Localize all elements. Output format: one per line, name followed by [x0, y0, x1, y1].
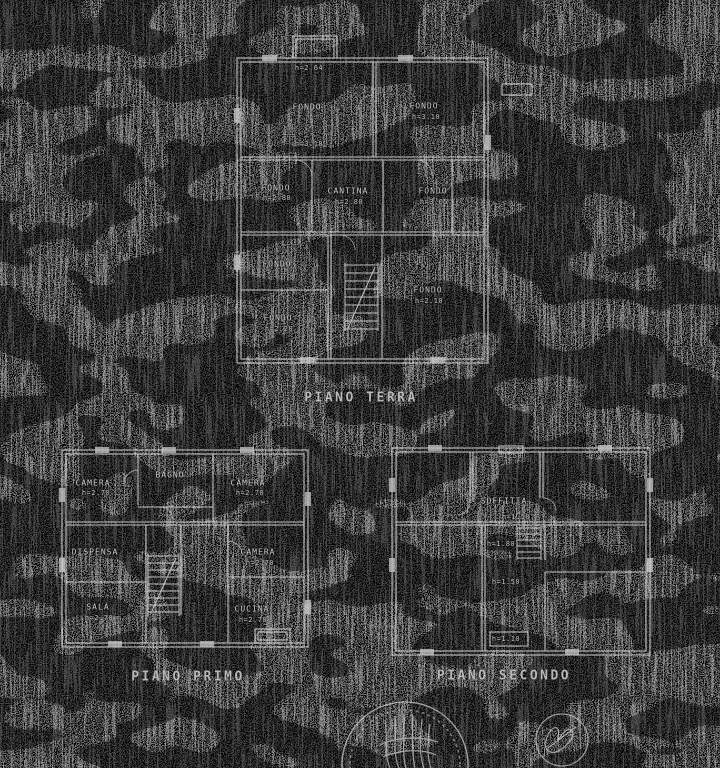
primo-room-bagno-label: BAGNO	[155, 471, 184, 480]
terra-room-fondo-5-label: FONDO	[262, 260, 291, 269]
terra-room-fondo-6-height: h=2.20	[265, 325, 293, 333]
terra-room-fondo-2-height: h=3.10	[412, 113, 440, 121]
piano-secondo-title: PIANO SECONDO	[437, 669, 571, 684]
scanned-blueprint-sheet: h=2.64 FONDO h=3.18 FONDO h=3.10 FONDO h…	[0, 0, 720, 768]
secondo-height-mark-2: h=1.50	[502, 513, 530, 521]
primo-room-camera-3-label: CAMERA	[241, 548, 276, 557]
primo-room-cucina-label: CUCINA	[235, 605, 270, 614]
secondo-height-mark-4: h=1.50	[492, 578, 520, 586]
terra-room-fondo-1-height: h=3.18	[295, 140, 323, 148]
primo-room-camera-3-height: h=2.70	[246, 559, 274, 567]
terra-room-fondo-3-label: FONDO	[261, 184, 290, 193]
blueprint-canvas	[0, 0, 720, 768]
primo-room-camera-1-label: CAMERA	[76, 479, 111, 488]
terra-room-fondo-7-height: h=2.10	[415, 297, 443, 305]
primo-room-sala-height: h=2.70	[85, 614, 113, 622]
terra-entry-height-label: h=2.64	[295, 64, 323, 72]
primo-room-camera-2-label: CAMERA	[231, 479, 266, 488]
primo-room-dispensa-label: DISPENSA	[72, 548, 119, 557]
secondo-room-soffitta-label: SOFFITTA	[481, 497, 528, 506]
terra-room-fondo-4-label: FONDO	[418, 187, 447, 196]
terra-room-cantina-height: h=2.80	[335, 198, 363, 206]
primo-room-camera-2-height: h=2.70	[236, 489, 264, 497]
terra-room-fondo-2-label: FONDO	[409, 102, 438, 111]
primo-room-cucina-height: h=2.70	[239, 616, 267, 624]
terra-staircase-icon	[345, 263, 378, 331]
secondo-height-mark-5: h=1.10	[492, 635, 520, 643]
terra-room-fondo-3-height: h=2.80	[263, 194, 291, 202]
terra-room-cantina-label: CANTINA	[328, 187, 369, 196]
primo-room-sala-label: SALA	[86, 603, 109, 612]
primo-room-camera-1-height: h=2.70	[82, 489, 110, 497]
terra-room-fondo-7-label: FONDO	[413, 286, 442, 295]
terra-room-fondo-1-label: FONDO	[292, 103, 321, 112]
terra-room-fondo-6-label: FONDO	[263, 314, 292, 323]
piano-terra-title: PIANO TERRA	[304, 391, 418, 406]
secondo-height-mark-1: h=1.50	[494, 452, 522, 460]
scan-dark-blotch-layer	[0, 0, 720, 768]
piano-primo-title: PIANO PRIMO	[131, 670, 245, 685]
secondo-height-mark-3: h=1.80	[487, 540, 515, 548]
terra-room-fondo-4-height: h=3.05	[420, 198, 448, 206]
